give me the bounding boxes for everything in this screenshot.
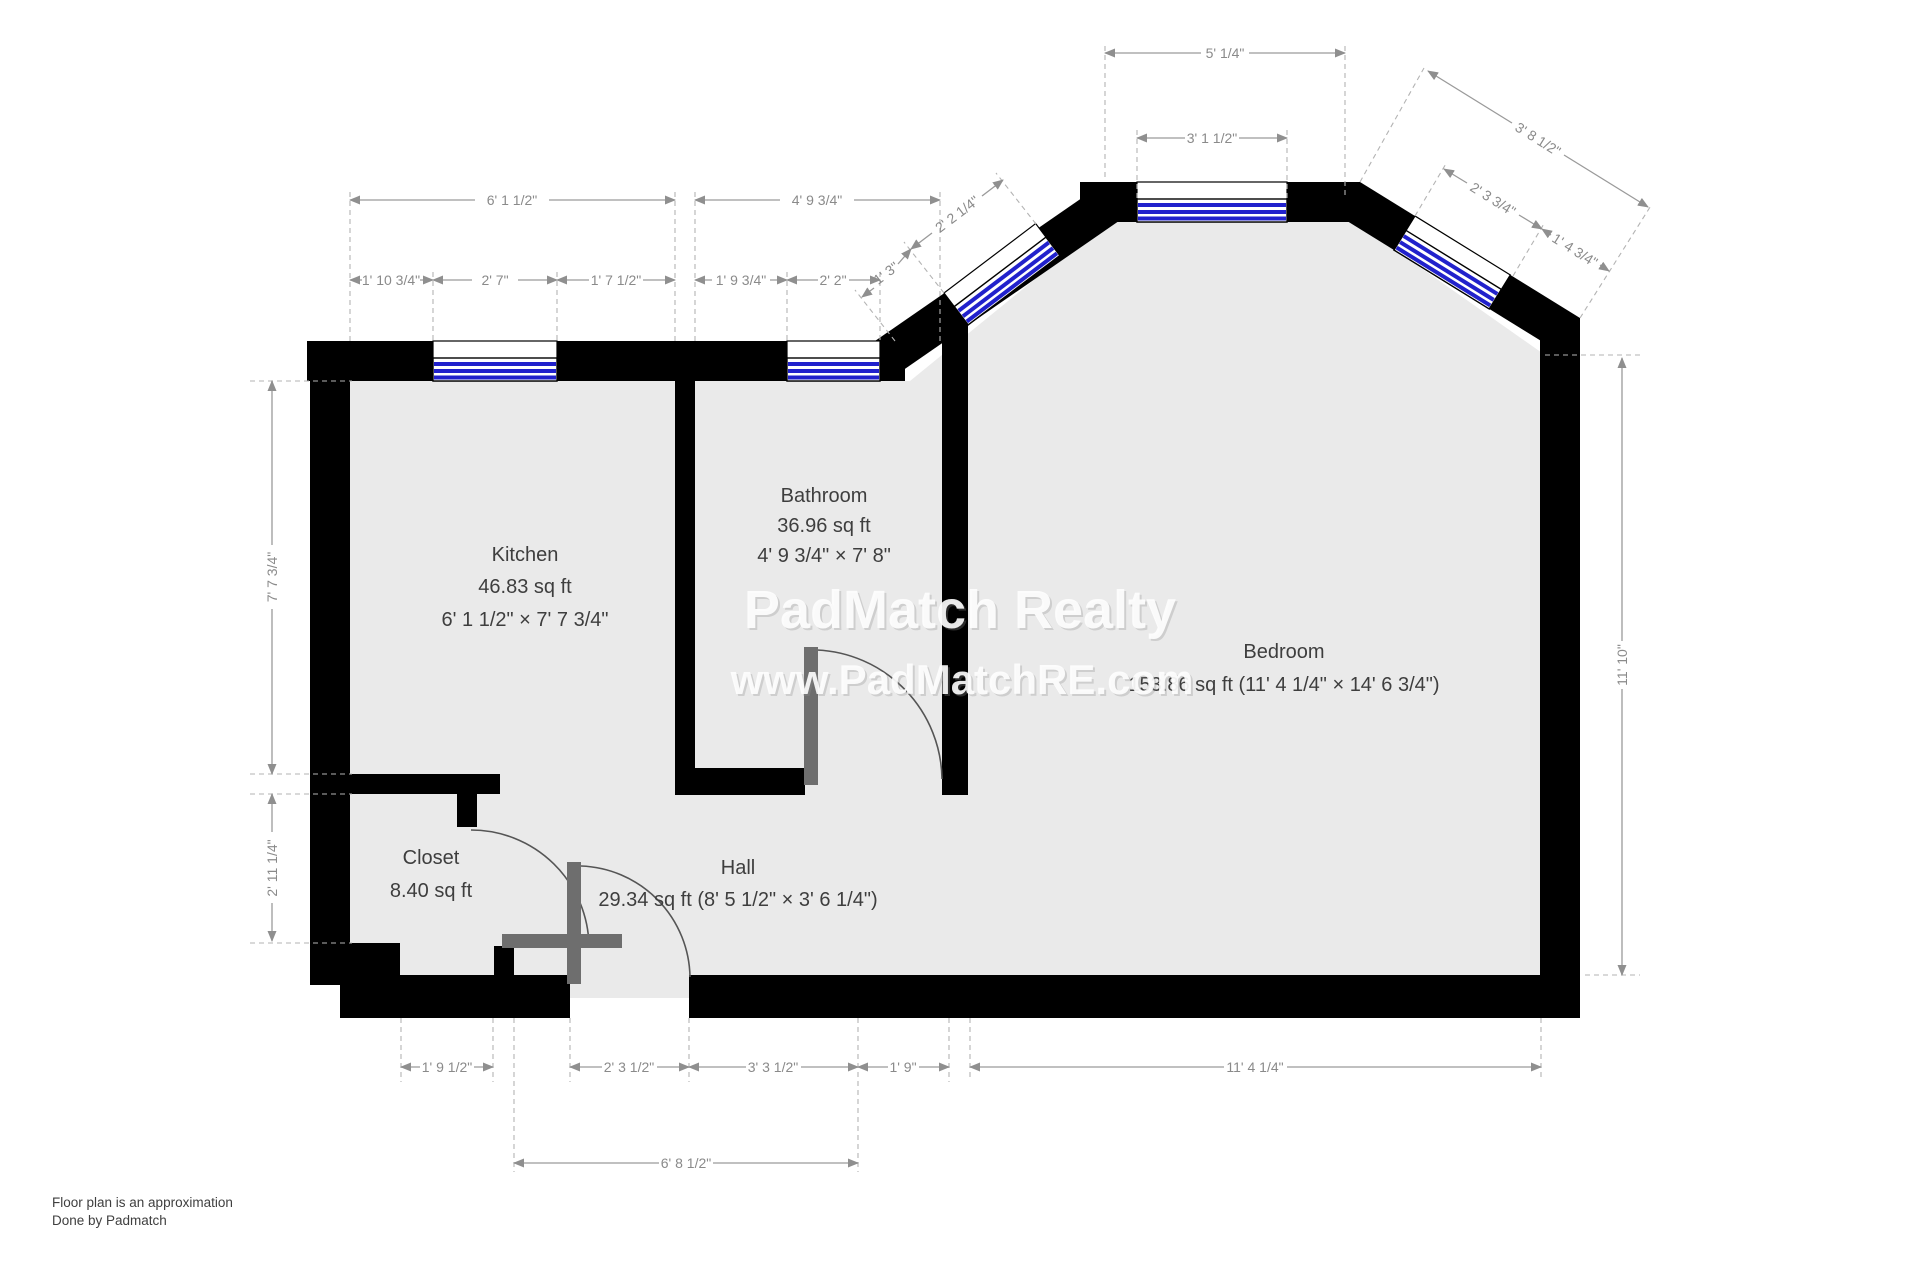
floor-plan-page: 6' 1 1/2" 4' 9 3/4" 1' 10 3/4" 2' 7" 1' … xyxy=(0,0,1920,1280)
bathroom-size: 4' 9 3/4" × 7' 8" xyxy=(757,545,891,567)
dim-bottom-a: 1' 9 1/2" xyxy=(422,1059,472,1075)
dim-diag-nw-inner: 1' 3" xyxy=(870,258,901,287)
entry-threshold xyxy=(570,975,689,998)
dim-bottom-hall: 6' 8 1/2" xyxy=(661,1155,711,1171)
closet-door-leaf xyxy=(502,934,622,948)
wall-bath-bedroom xyxy=(942,300,968,795)
bathroom-area: 36.96 sq ft xyxy=(777,515,871,537)
closet-name: Closet xyxy=(403,847,460,869)
dim-bottom-bedroom: 11' 4 1/4" xyxy=(1226,1059,1283,1075)
wall-entry-stub xyxy=(494,946,514,986)
footer-line2: Done by Padmatch xyxy=(52,1213,167,1228)
dim-bottom-d: 1' 9" xyxy=(889,1059,916,1075)
dim-diag-ne-b: 1' 4 3/4" xyxy=(1549,230,1600,270)
wall-left xyxy=(310,341,350,985)
hall-details: 29.34 sq ft (8' 5 1/2" × 3' 6 1/4") xyxy=(598,889,877,911)
dim-diag-ne-outer: 3' 8 1/2" xyxy=(1512,119,1563,159)
dim-bath-b: 2' 2" xyxy=(819,272,846,288)
dim-kitchen-c: 1' 7 1/2" xyxy=(591,272,641,288)
dim-diag-ne-a: 2' 3 3/4" xyxy=(1467,179,1518,219)
wall-closet-stub xyxy=(457,774,477,827)
dim-right-bedroom: 11' 10" xyxy=(1614,644,1630,686)
bathroom-name: Bathroom xyxy=(781,485,868,507)
hall-name: Hall xyxy=(721,857,755,879)
footer-line1: Floor plan is an approximation xyxy=(52,1195,233,1210)
wall-bottom-right xyxy=(689,975,1580,1018)
kitchen-window xyxy=(433,341,557,381)
dim-bath-total: 4' 9 3/4" xyxy=(792,192,842,208)
dim-left-kitchen: 7' 7 3/4" xyxy=(264,552,280,602)
watermark-line2: www.PadMatchRE.com xyxy=(730,656,1194,703)
kitchen-name: Kitchen xyxy=(492,544,559,566)
bathroom-window xyxy=(787,341,880,381)
wall-right xyxy=(1540,318,1580,1015)
floor-plan-drawing: 6' 1 1/2" 4' 9 3/4" 1' 10 3/4" 2' 7" 1' … xyxy=(0,0,1920,1280)
dim-kitchen-total: 6' 1 1/2" xyxy=(487,192,537,208)
footer-notes: Floor plan is an approximation Done by P… xyxy=(52,1195,233,1228)
bay-top-window xyxy=(1137,182,1287,222)
wall-bottom-left xyxy=(340,975,570,1018)
dim-bottom-b: 2' 3 1/2" xyxy=(604,1059,654,1075)
entry-door-leaf xyxy=(567,862,581,984)
kitchen-size: 6' 1 1/2" × 7' 7 3/4" xyxy=(442,609,609,631)
dim-kitchen-b: 2' 7" xyxy=(481,272,508,288)
dim-kitchen-a: 1' 10 3/4" xyxy=(362,272,420,288)
closet-area: 8.40 sq ft xyxy=(390,880,473,902)
dim-bay-total: 5' 1/4" xyxy=(1206,45,1245,61)
kitchen-area: 46.83 sq ft xyxy=(478,576,572,598)
dim-bay-window: 3' 1 1/2" xyxy=(1187,130,1237,146)
dim-left-closet: 2' 11 1/4" xyxy=(264,839,280,896)
wall-kitchen-bottom xyxy=(350,774,500,794)
bedroom-name: Bedroom xyxy=(1243,641,1324,663)
dim-bottom-c: 3' 3 1/2" xyxy=(748,1059,798,1075)
wall-kitchen-bath xyxy=(675,341,695,795)
wall-bath-bottom xyxy=(675,768,805,795)
watermark-line1: PadMatch Realty xyxy=(744,580,1176,640)
dim-bath-a: 1' 9 3/4" xyxy=(716,272,766,288)
